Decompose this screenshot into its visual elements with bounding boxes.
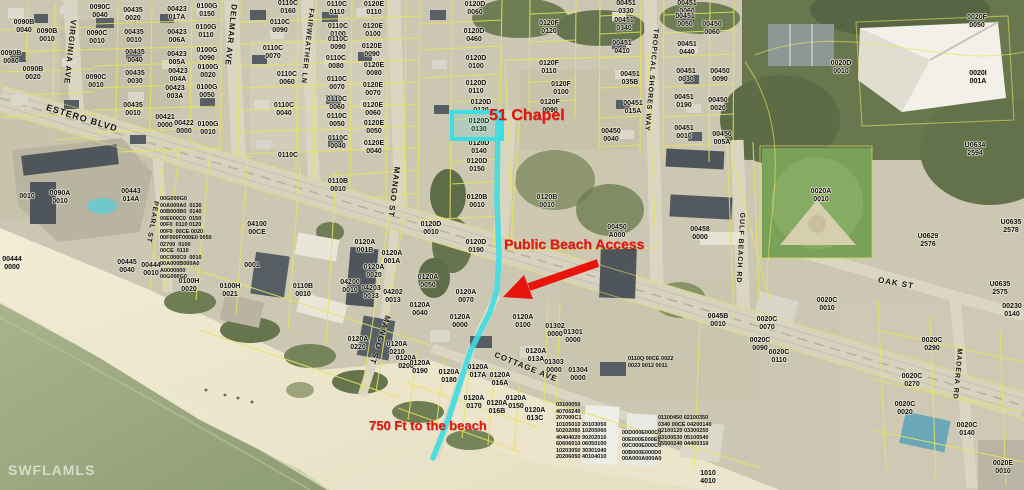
highlighted-parcel-outline <box>452 112 502 139</box>
watermark: SWFLAMLS <box>8 462 95 478</box>
beach-route-path <box>433 119 499 458</box>
aerial-parcel-map[interactable]: 0090B 00400090C 00400090B 00100090B 0080… <box>0 0 1024 490</box>
route-overlay <box>0 0 1024 490</box>
beach-access-arrow-icon <box>503 263 598 299</box>
